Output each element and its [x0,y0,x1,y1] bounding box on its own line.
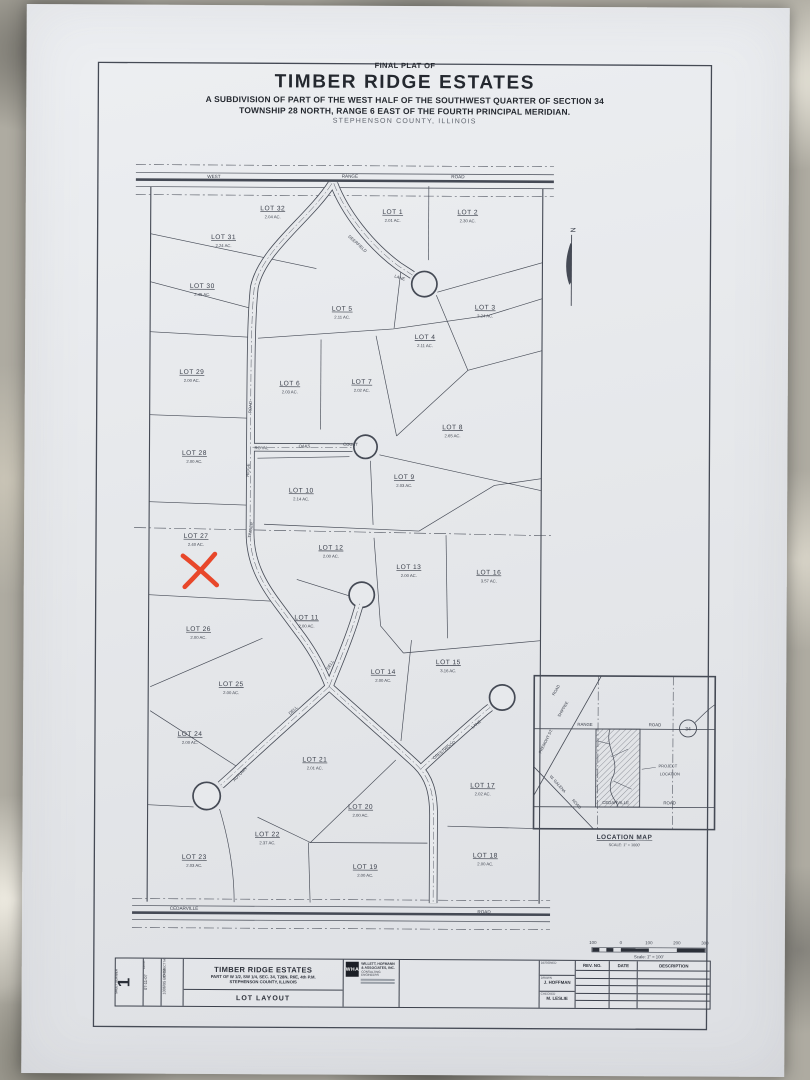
lot-label: LOT 13 [396,564,421,571]
lot-label: LOT 19 [353,864,378,871]
road-label: COURT [343,442,358,447]
lot-label: LOT 29 [179,369,204,376]
lot-acreage: 2.00 AC. [190,635,206,640]
locmap-label: ROAD [551,684,561,697]
lot-label: LOT 15 [436,659,461,666]
lot-label: LOT 22 [255,831,280,838]
road-label: RANGE [342,174,358,179]
lot-acreage: 2.03 AC. [282,389,298,394]
revision-table: REV. NO. DATE DESCRIPTION [576,961,710,1009]
checked-value: M. LESLIE [541,995,574,1000]
date-label: DATE [144,960,146,968]
north-label: N [569,227,576,232]
project-title-cell: TIMBER RIDGE ESTATES PART OF W 1/2, SW 1… [184,959,344,1007]
lot-label: LOT 6 [279,380,300,387]
credits-cell: DESIGNED DRAWN J. HOFFMAN CHECKED M. LES… [540,961,576,1008]
lot-label: LOT 5 [332,306,353,313]
revision-row [576,1001,710,1008]
lot-acreage: 2.01 AC. [307,765,323,770]
lot-label: LOT 16 [476,569,501,576]
engineer-firm-tagline: CONSULTING ENGINEERS [361,970,397,978]
red-x-mark [183,554,217,587]
street-centerlines [220,183,493,903]
street-outlines [220,183,493,903]
locmap-scale: SCALE: 1" = 1000' [609,843,641,847]
lot-label: LOT 31 [211,234,236,241]
lot-acreage: 2.11 AC. [334,315,350,320]
lot-label: LOT 26 [186,626,211,633]
plat-sheet-paper: LOT 322.04 AC.LOT 12.01 AC.LOT 22.30 AC.… [21,4,790,1077]
street-surfaces [220,183,493,903]
scalebar-tick-label: 300 [701,941,709,946]
lot-acreage: 2.00 AC. [186,459,202,464]
lot-acreage: 2.00 AC. [184,378,200,383]
lot-acreage: 2.24 AC. [215,243,231,248]
sheet-number-value: 1 [116,978,135,988]
north-arrow [566,235,572,306]
lot-label: LOT 7 [351,379,372,386]
lot-acreage: 2.02 AC. [354,388,370,393]
locmap-label: W. GALENA [549,774,568,794]
lot-acreage: 2.45 AC. [194,292,210,297]
subdivision-name: TIMBER RIDGE ESTATES [98,70,711,97]
location-map [533,676,715,830]
lot-acreage: 2.00 AC. [323,554,339,559]
lot-label: LOT 12 [319,545,344,552]
sheet-subtitle: LOT LAYOUT [184,990,343,1007]
rev-date-header: DATE [610,961,638,970]
road-label: RIDGE [245,463,251,477]
lot-acreage: 2.24 AC. [477,313,493,318]
scalebar-caption: Scale: 1" = 100' [634,954,664,959]
lot-label: LOT 18 [473,852,498,859]
lot-acreage: 2.00 AC. [298,623,314,628]
locmap-label: ROAD [571,798,582,810]
locmap-label: PROJECT [658,763,677,768]
project-no-value: 1006/95 BO 03 [162,969,166,995]
lot-acreage: 2.03 AC. [186,863,202,868]
lot-acreage: 2.00 AC. [353,813,369,818]
revision-table-header: REV. NO. DATE DESCRIPTION [576,961,710,972]
lot-acreage: 2.00 AC. [357,873,373,878]
road-label: WEST [207,174,220,179]
scale-bar [592,947,706,952]
firm-address-line [361,979,395,981]
firm-phone-line [361,982,395,984]
locmap-label: LOCATION [660,771,680,776]
blank-cell [400,960,540,1008]
sheet-border [93,62,711,1029]
plat-drawing: LOT 322.04 AC.LOT 12.01 AC.LOT 22.30 AC.… [21,4,790,1077]
drawn-value: J. HOFFMAN [541,980,574,985]
checked-row: CHECKED M. LESLIE [540,991,575,1006]
lot-label: LOT 2 [457,209,478,216]
lot-acreage: 2.37 AC. [259,840,275,845]
lot-label: LOT 24 [178,731,203,738]
lot-label: LOT 30 [190,283,215,290]
road-label: OAKS [299,443,311,448]
designed-row: DESIGNED [540,961,575,976]
lot-acreage: 2.11 AC. [417,343,433,348]
lot-label: LOT 27 [184,533,209,540]
locmap-label: 34 [685,726,691,732]
lot-acreage: 2.02 AC. [475,791,491,796]
lot-label: LOT 11 [294,614,318,621]
locmap-label: SHIPPEE [556,700,569,718]
lot-acreage: 2.40 AC. [188,542,204,547]
road-label: CEDARVILLE [170,906,199,911]
lot-acreage: 2.00 AC. [477,861,493,866]
road-label: ROYAL [255,445,270,450]
lot-acreage: 2.14 AC. [293,496,309,501]
locmap-label: ROAD [663,800,675,805]
project-location-hatch [596,729,640,807]
lot-label: LOT 14 [371,669,396,676]
engineer-logo-cell: WHA WILLETT, HOFMANN & ASSOCIATES, INC. … [344,960,400,1007]
drawn-row: DRAWN J. HOFFMAN [540,976,575,991]
designed-label: DESIGNED [541,961,574,965]
lot-acreage: 2.65 AC. [444,433,460,438]
lot-label: LOT 32 [260,205,285,212]
road-label: ROAD [477,909,491,914]
date-value: 07-11-07 [144,974,149,990]
lot-label: LOT 20 [348,804,373,811]
locmap-title: LOCATION MAP [597,834,653,841]
lot-label: LOT 4 [415,334,436,341]
lot-label: LOT 8 [442,424,463,431]
scalebar-tick-label: 200 [673,940,681,945]
lot-label: LOT 3 [475,304,496,311]
lot-acreage: 2.00 AC. [182,740,198,745]
scalebar-tick-label: 0 [620,940,623,945]
lot-label: LOT 25 [219,681,244,688]
lot-label: LOT 10 [289,487,314,494]
rev-description-header: DESCRIPTION [638,961,710,971]
photo-scene: LOT 322.04 AC.LOT 12.01 AC.LOT 22.30 AC.… [0,0,810,1080]
sheet-number-cell: SHEET NUMBER 1 [116,958,144,1005]
sheet-titles: FINAL PLAT OF TIMBER RIDGE ESTATES A SUB… [98,59,711,128]
lot-acreage: 2.04 AC. [265,214,281,219]
lot-label: LOT 21 [302,756,327,763]
project-no-cell: PROJECT NO. 1006/95 BO 03 [162,959,184,1006]
lot-acreage: 2.03 AC. [396,483,412,488]
road-label: ROAD [451,174,465,179]
lot-label: LOT 9 [394,474,415,481]
scalebar-tick-label: 100 [589,940,597,945]
west-range-road [136,165,554,197]
lot-acreage: 2.00 AC. [223,690,239,695]
lot-acreage: 2.01 AC. [385,218,401,223]
locmap-label: CEDARVILLE [602,800,629,805]
subdivision-description-2: TOWNSHIP 28 NORTH, RANGE 6 EAST OF THE F… [98,104,711,118]
engineer-firm-text: WILLETT, HOFMANN & ASSOCIATES, INC. CONS… [361,962,397,1005]
title-block: SHEET NUMBER 1 DATE 07-11-07 PROJECT NO.… [115,957,711,1009]
lot-acreage: 2.00 AC. [375,678,391,683]
lot-acreage: 3.57 AC. [481,578,497,583]
lot-label: LOT 17 [470,782,495,789]
rev-no-header: REV. NO. [576,961,610,970]
title-block-county: STEPHENSON COUNTY, ILLINOIS [184,978,343,984]
lot-label: LOT 28 [182,450,207,457]
lot-label: LOT 1 [382,209,403,216]
road-label: ROAD [247,401,253,413]
locmap-label: ROAD [649,722,661,727]
date-cell: DATE 07-11-07 [144,959,162,1006]
wha-logo-icon: WHA [346,962,360,977]
lot-label: LOT 23 [182,854,207,861]
scalebar-tick-label: 100 [645,940,653,945]
lot-acreage: 3.16 AC. [440,668,456,673]
lot-acreage: 2.30 AC. [460,218,476,223]
lot-acreage: 2.00 AC. [401,573,417,578]
locmap-label: RANGE [577,722,592,727]
